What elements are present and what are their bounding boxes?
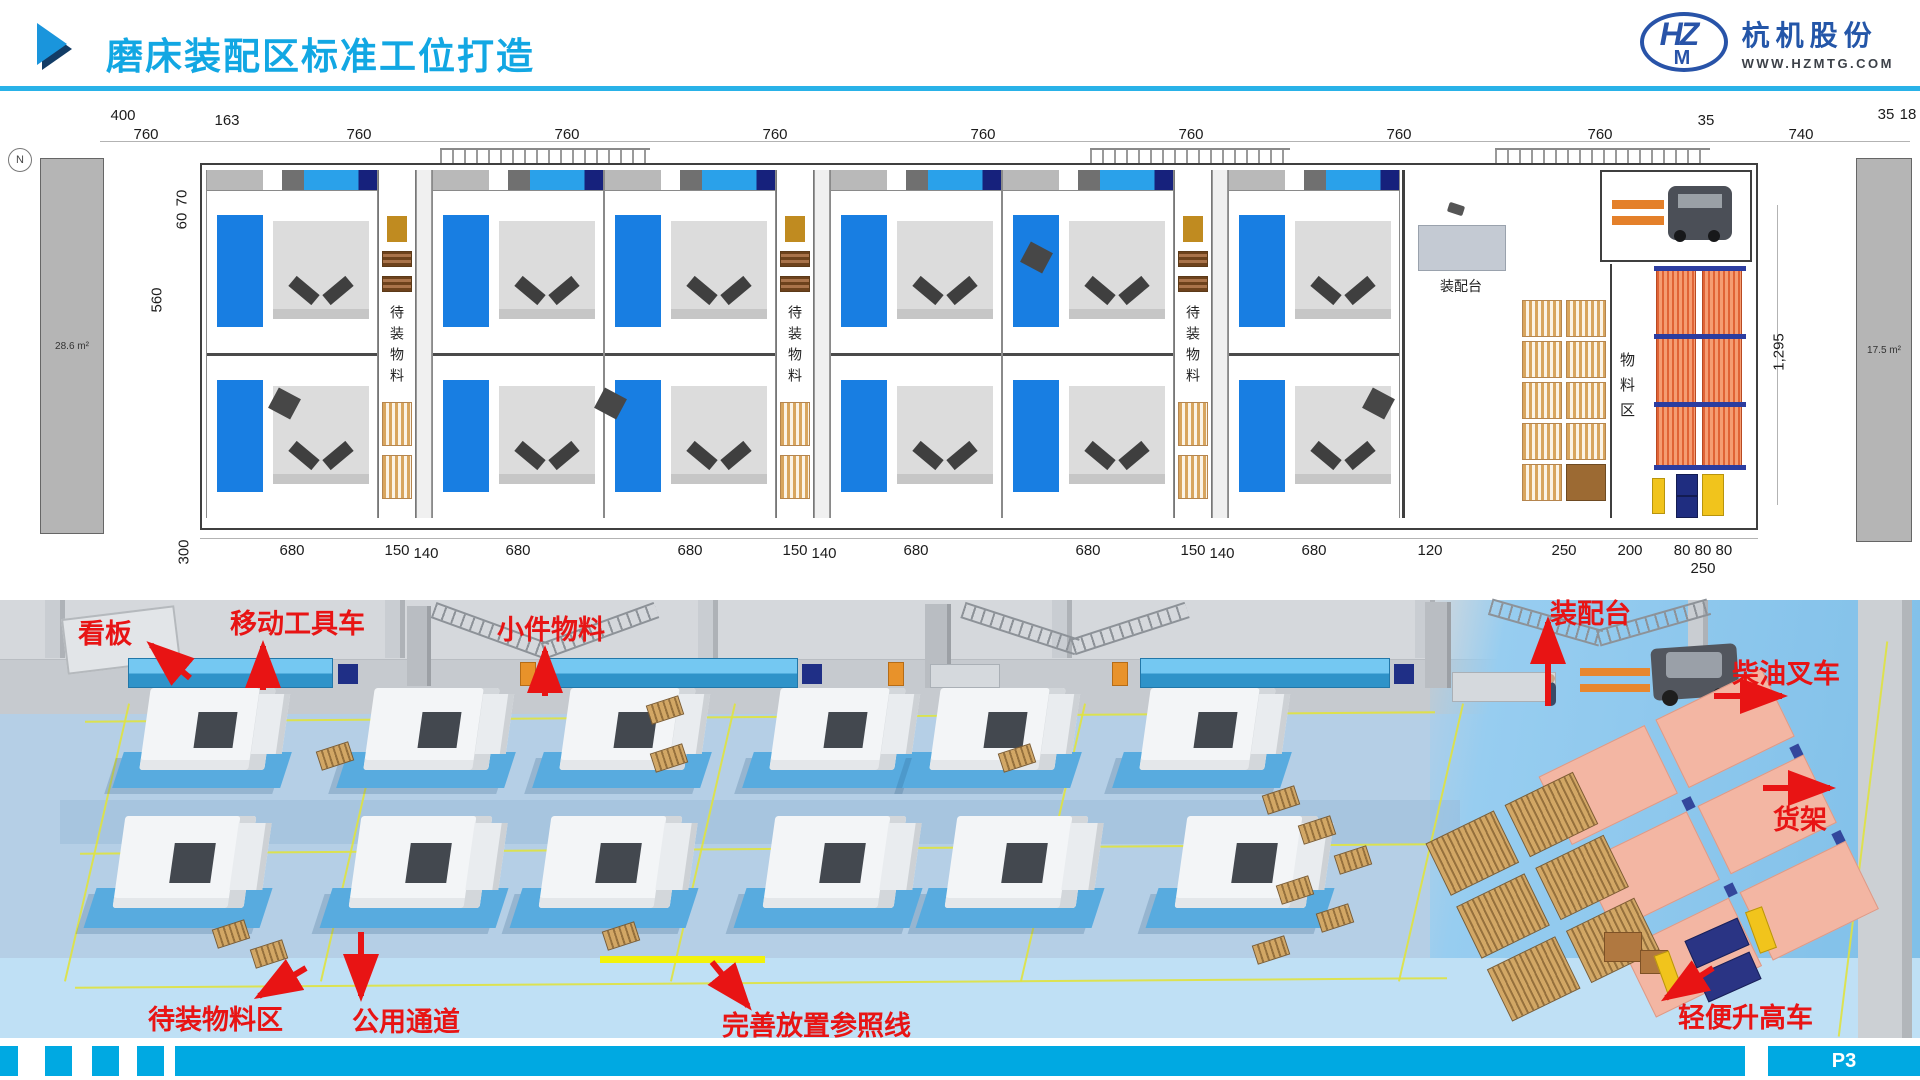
footer-deco-square	[137, 1046, 164, 1076]
page-number: P3	[1768, 1046, 1920, 1076]
slide-footer: P3	[0, 0, 1920, 1080]
footer-bar	[175, 1046, 1745, 1076]
footer-deco-square	[45, 1046, 72, 1076]
footer-deco-square	[0, 1046, 18, 1076]
slide: 磨床装配区标准工位打造 HZ M 杭机股份 WWW.HZMTG.COM N 28…	[0, 0, 1920, 1080]
footer-deco-square	[92, 1046, 119, 1076]
